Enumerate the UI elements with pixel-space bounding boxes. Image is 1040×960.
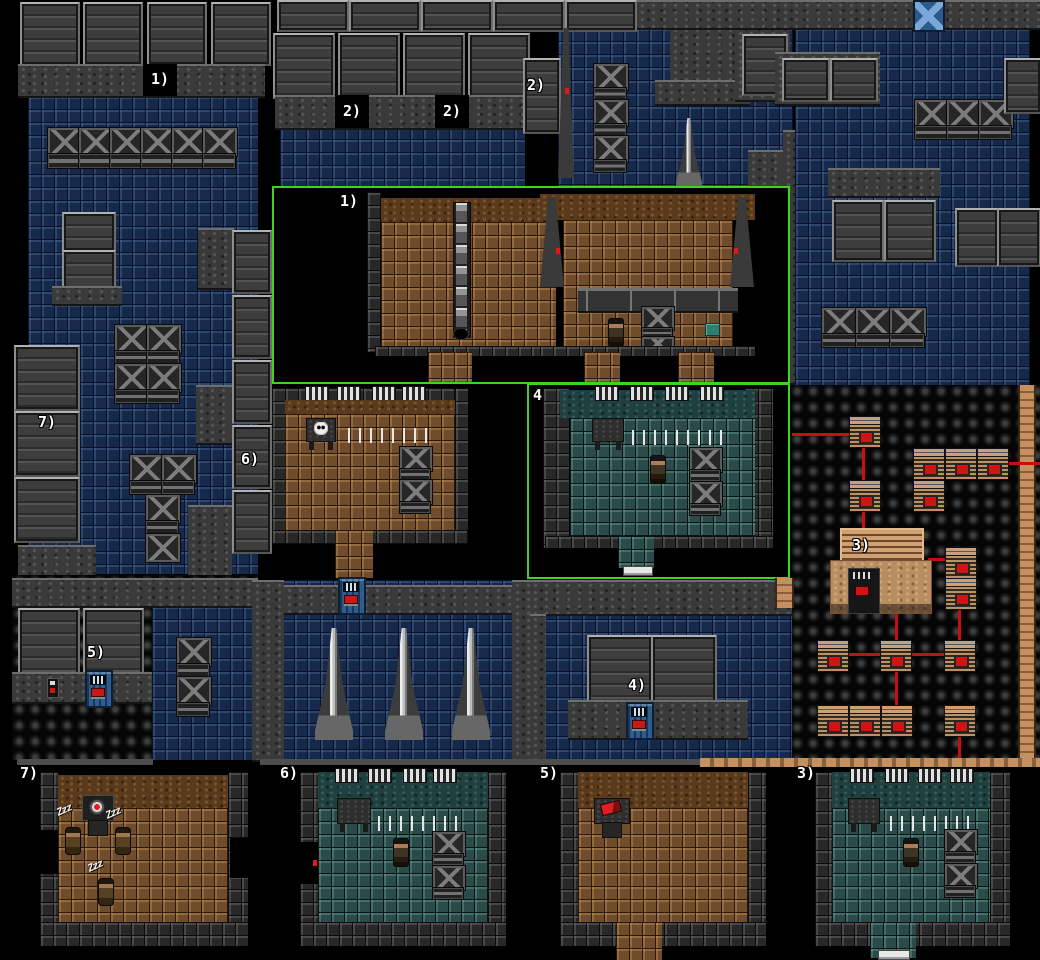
wall-panel: [232, 295, 272, 359]
wall-panel: [83, 608, 144, 676]
wall-panel: [955, 208, 999, 267]
pylon-light: [565, 88, 569, 94]
room7-west-door-gap: [40, 830, 58, 874]
floor-north: [280, 126, 525, 186]
crate: [822, 308, 858, 336]
wall-marker-7: 7): [38, 415, 56, 430]
skull-trophy: [314, 422, 328, 435]
window-bars: [595, 386, 619, 401]
crate: [115, 325, 149, 353]
crate: [690, 448, 722, 472]
floor-glints: [378, 816, 463, 831]
crate: [856, 308, 892, 336]
crate: [642, 307, 674, 330]
pylon-light: [556, 248, 560, 254]
computer-console: [817, 705, 849, 737]
crate: [400, 447, 432, 471]
elevator-slots: [90, 675, 106, 685]
room6-back-wall: [285, 400, 455, 414]
elevator-mat: [623, 566, 653, 576]
wall-panel: [62, 212, 116, 252]
table: [306, 418, 336, 442]
wall-panel: [232, 360, 272, 424]
guard-sprite: [393, 838, 409, 867]
room3-marker: 3): [797, 766, 815, 781]
door-vents: [853, 572, 871, 579]
wall-panel: [493, 0, 565, 32]
desk-leg: [340, 823, 345, 832]
console-light: [954, 655, 969, 668]
computer-console: [881, 705, 913, 737]
room1-pipe-column: [453, 202, 471, 338]
connection-line: [895, 670, 898, 705]
wall-panel: [62, 250, 116, 290]
crate: [594, 100, 628, 126]
sleeping-guard: [65, 827, 81, 855]
room3-east-wall: [990, 772, 1010, 922]
computer-console: [944, 705, 976, 737]
crate-slat: [115, 390, 147, 403]
desk-leg: [616, 441, 621, 450]
crate-slat: [856, 334, 890, 347]
wall-panel: [468, 33, 530, 99]
wall-panel: [523, 58, 561, 134]
wall-panel: [349, 0, 421, 32]
window-bars: [335, 768, 359, 783]
crate: [110, 128, 144, 156]
crate: [146, 534, 180, 562]
door-light: [313, 860, 317, 866]
crate: [594, 136, 628, 162]
floor-glints: [890, 816, 975, 831]
wall-panel: [147, 2, 207, 66]
connection-line: [792, 433, 849, 436]
console-light: [923, 495, 938, 508]
crate-slat: [146, 521, 178, 534]
crate-slat: [690, 470, 720, 481]
computer-console: [977, 448, 1009, 480]
guard-sprite: [903, 838, 919, 867]
table-leg: [328, 441, 333, 450]
device-stand: [88, 820, 108, 836]
crate-slat: [822, 334, 856, 347]
wall-panel: [587, 635, 653, 705]
crate: [146, 495, 180, 523]
crate-slat: [79, 154, 111, 168]
wall-block: [198, 228, 234, 290]
crate-slat: [979, 126, 1011, 139]
wall-ledge: [52, 286, 122, 306]
desk-leg: [851, 823, 856, 832]
wall-block: [188, 505, 232, 577]
item-pickup: [705, 323, 720, 336]
crate: [690, 482, 722, 506]
console-light: [954, 720, 969, 733]
conduit-strip: [1018, 385, 1036, 760]
room3-west-wall: [815, 772, 832, 922]
crate: [203, 128, 237, 156]
room6-west-wall: [272, 388, 285, 544]
console-light: [859, 720, 874, 733]
sleeping-guard: [115, 827, 131, 855]
window-bars: [950, 768, 974, 783]
crate-slat: [400, 502, 430, 513]
window-bars: [337, 386, 361, 401]
pylon-light: [734, 248, 738, 254]
floor-glints: [632, 430, 722, 445]
wall-column: [530, 614, 546, 762]
computer-console: [945, 448, 977, 480]
crate-slat: [594, 124, 626, 136]
connection-line: [847, 653, 880, 656]
hatch-door: [913, 0, 945, 32]
wall-panel: [1004, 58, 1040, 114]
guard-sprite: [650, 455, 666, 484]
connection-line: [958, 607, 961, 640]
room7-floor: [58, 808, 228, 922]
door-marker-2a: 2): [343, 104, 361, 119]
wall-panel: [421, 0, 493, 32]
building-body: [830, 560, 932, 614]
building-3-marker: 3): [852, 538, 870, 553]
room2-exit-corridor: [678, 352, 714, 382]
connection-line: [895, 612, 898, 640]
wall-panel: [832, 200, 884, 262]
device-light: [50, 688, 55, 693]
room6-exit-corridor: [335, 530, 373, 578]
console-light: [827, 655, 842, 668]
crate-slat: [890, 334, 924, 347]
doorway-2a: 2): [335, 95, 369, 128]
elevator-door: [626, 702, 654, 740]
door-marker-2c: 2): [527, 78, 545, 93]
wall-panel: [232, 230, 272, 294]
window-bars: [665, 386, 689, 401]
elevator-button: [91, 688, 105, 697]
window-bars: [305, 386, 329, 401]
room1-wall: [367, 192, 381, 352]
crate-slat: [433, 854, 463, 865]
crate-slat: [48, 154, 80, 168]
wall-ledge: [568, 700, 748, 740]
room2-south-wall: [540, 346, 755, 356]
alarm-device: [47, 678, 59, 698]
window-bars: [700, 386, 724, 401]
crate-slat: [147, 390, 179, 403]
doorway-1: 1): [143, 64, 177, 96]
window-bars: [630, 386, 654, 401]
crate-slat: [594, 160, 626, 172]
desk: [337, 798, 371, 824]
wall-panel: [277, 0, 349, 32]
inset-marker-1: 1): [340, 194, 358, 209]
wall-marker-6: 6): [241, 452, 259, 467]
building-3: 3): [830, 528, 930, 612]
elevator-slots: [631, 707, 647, 717]
crate: [433, 866, 465, 890]
console-light: [890, 655, 905, 668]
crate-slat: [594, 88, 626, 100]
device-lens: [50, 681, 55, 685]
console-light: [891, 720, 906, 733]
crate: [141, 128, 175, 156]
elevator-mat: [878, 950, 910, 960]
wall-panel: [651, 635, 717, 705]
room4-south-wall: [545, 536, 773, 548]
computer-console: [880, 640, 912, 672]
room5-marker: 5): [540, 766, 558, 781]
doorway-2b: 2): [435, 95, 469, 128]
crate-slat: [947, 126, 979, 139]
window-bars: [403, 768, 427, 783]
crate: [162, 455, 196, 483]
computer-console: [849, 480, 881, 512]
room5-exit-corridor: [616, 922, 662, 960]
wall-column: [252, 580, 284, 762]
wall-block: [670, 25, 735, 82]
wall-panel: [211, 2, 271, 66]
desk: [848, 798, 880, 824]
crate-slat: [115, 351, 147, 364]
crate-slat: [400, 469, 430, 480]
console-light: [987, 463, 1002, 476]
wall-panel: [830, 58, 878, 102]
window-bars: [850, 768, 874, 783]
connection-line: [1007, 462, 1040, 465]
crate: [172, 128, 206, 156]
window-bars: [368, 768, 392, 783]
room5-south-wall: [560, 922, 766, 946]
computer-console: [945, 578, 977, 610]
window-bars: [372, 386, 396, 401]
door-marker-1: 1): [151, 72, 169, 87]
console-light: [827, 720, 842, 733]
wall-band: [828, 168, 940, 198]
crate: [130, 455, 164, 483]
room5-east-wall: [748, 772, 766, 922]
wall-marker-4: 4): [628, 678, 646, 693]
crate: [945, 830, 977, 854]
crate: [594, 64, 628, 90]
crate-slat: [177, 703, 209, 716]
room6-marker: 6): [280, 766, 298, 781]
crate: [945, 864, 977, 888]
guard-sprite: [608, 318, 624, 347]
room2-exit-corridor: [584, 352, 620, 382]
computer-console: [849, 705, 881, 737]
door-light: [855, 586, 869, 596]
room7-east-door-gap: [230, 838, 248, 878]
desk-leg: [872, 823, 877, 832]
wall-band: [12, 578, 258, 608]
elevator-slots: [343, 582, 359, 592]
crate-slat: [433, 888, 463, 899]
console-light: [955, 463, 970, 476]
crate-slat: [130, 481, 162, 494]
window-bars: [885, 768, 909, 783]
wall-remnant: [260, 759, 700, 765]
wall-band: [530, 580, 792, 616]
computer-console: [944, 640, 976, 672]
crate-slat: [945, 886, 975, 897]
elevator-button: [344, 595, 358, 604]
wall-panel: [338, 33, 400, 99]
crate: [147, 364, 181, 392]
crate: [177, 677, 211, 705]
wall-band: [284, 585, 514, 615]
desk-leg: [363, 823, 368, 832]
wall-panel: [14, 345, 80, 411]
wall-panel: [83, 2, 143, 66]
desk-leg: [595, 441, 600, 450]
connection-line: [862, 446, 865, 482]
floor-glints: [348, 428, 428, 443]
elevator-door: [85, 670, 113, 708]
window-bars: [402, 386, 426, 401]
crate: [890, 308, 926, 336]
room2-back-wall: [540, 194, 755, 220]
console-light: [859, 495, 874, 508]
window-bars: [433, 768, 457, 783]
wall-column: [512, 580, 530, 762]
crate-slat: [147, 351, 179, 364]
room1-exit-corridor: [428, 352, 472, 382]
crate-slat: [110, 154, 142, 168]
crate-slat: [162, 481, 194, 494]
table: [594, 798, 630, 824]
computer-console: [913, 448, 945, 480]
conduit-remnant: [700, 758, 1040, 767]
wall-panel: [18, 608, 80, 676]
goggles-item: [600, 800, 622, 816]
room7-marker: 7): [20, 766, 38, 781]
crate-slat: [690, 504, 720, 515]
crate-slat: [177, 664, 209, 677]
elevator-door: [338, 577, 366, 615]
crate: [79, 128, 113, 156]
room7-south-wall: [40, 922, 248, 946]
console-light: [955, 593, 970, 606]
room4-back-wall: [560, 390, 755, 418]
north-wall: [18, 64, 265, 98]
wall-marker-5: 5): [87, 645, 105, 660]
wall-panel: [565, 0, 637, 32]
crate-slat: [172, 154, 204, 168]
room5-west-wall: [560, 772, 578, 922]
conduit-stub: [775, 578, 794, 608]
desk: [592, 418, 624, 442]
connection-line: [958, 735, 961, 760]
elevator-button: [632, 720, 646, 729]
wall-panel: [20, 2, 80, 66]
wall-panel: [403, 33, 465, 99]
wall-ledge: [18, 545, 96, 579]
room6d-south-wall: [300, 922, 506, 946]
building-door: [848, 568, 880, 614]
console-light: [955, 562, 970, 575]
connection-line: [910, 653, 944, 656]
computer-console: [913, 480, 945, 512]
room4-exit-corridor: [618, 536, 654, 568]
computer-console: [849, 416, 881, 448]
crate-slat: [141, 154, 173, 168]
room6-east-wall: [455, 388, 468, 544]
crate-slat: [945, 852, 975, 863]
crate: [115, 364, 149, 392]
wall-block: [196, 385, 232, 445]
computer-console: [945, 547, 977, 579]
north-wall: [637, 0, 1040, 30]
table-leg: [309, 441, 314, 450]
crate: [915, 100, 949, 128]
pipe-opening: [453, 328, 469, 340]
wall-ledge: [12, 672, 152, 704]
sleeping-guard: [98, 878, 114, 906]
console-light: [859, 431, 874, 444]
crate: [147, 325, 181, 353]
wall-band: [275, 95, 525, 130]
wall-panel: [782, 58, 830, 102]
wall-panel: [14, 477, 80, 543]
computer-console: [817, 640, 849, 672]
door-marker-2b: 2): [443, 104, 461, 119]
table-stand: [602, 822, 622, 838]
crate-slat: [203, 154, 235, 168]
window-bars: [918, 768, 942, 783]
wall-panel: [273, 33, 335, 99]
camera-eye: [89, 799, 105, 815]
crate: [48, 128, 82, 156]
crate: [177, 638, 211, 666]
crate-slat: [915, 126, 947, 139]
facility-map: 1) 7) 6) 2): [0, 0, 1040, 960]
wall-panel: [884, 200, 936, 262]
room6d-east-wall: [488, 772, 506, 922]
wall-panel: [997, 208, 1040, 267]
crate: [400, 480, 432, 504]
crate: [947, 100, 981, 128]
wall-panel: [232, 490, 272, 554]
crate: [433, 832, 465, 856]
console-light: [923, 463, 938, 476]
